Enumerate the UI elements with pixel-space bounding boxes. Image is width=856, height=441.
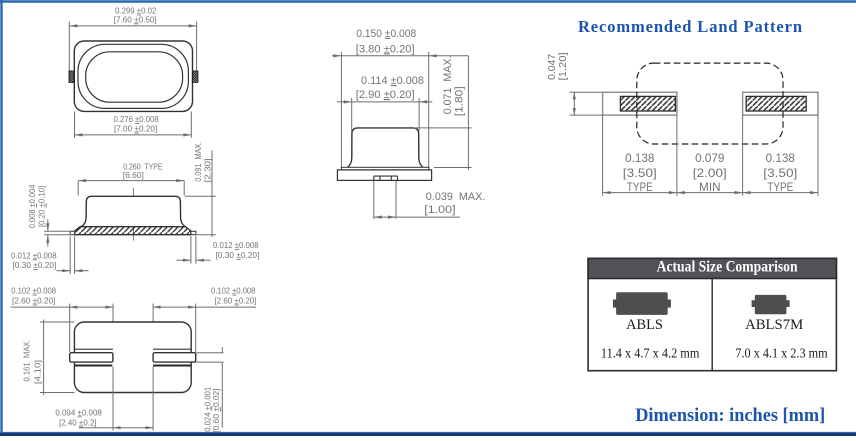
svg-text:0.102 ±0.008: 0.102 ±0.008 — [211, 286, 256, 296]
svg-text:0.138: 0.138 — [625, 151, 655, 165]
svg-text:[0.30 ±0.20]: [0.30 ±0.20] — [216, 250, 260, 260]
svg-text:ABLS7M: ABLS7M — [745, 317, 803, 333]
svg-text:[2.40 ±0.2]: [2.40 ±0.2] — [59, 418, 97, 428]
svg-text:[0.30 ±0.20]: [0.30 ±0.20] — [13, 260, 57, 270]
svg-text:[7.00 ±0.20]: [7.00 ±0.20] — [114, 124, 157, 134]
svg-text:0.071 MAX.: 0.071 MAX. — [442, 56, 454, 115]
svg-text:7.0 x 4.1 x 2.3 mm: 7.0 x 4.1 x 2.3 mm — [735, 347, 827, 362]
svg-text:Recommended Land Pattern: Recommended Land Pattern — [578, 17, 802, 36]
svg-text:[1.20]: [1.20] — [557, 52, 569, 80]
svg-text:0.012 ±0.008: 0.012 ±0.008 — [11, 250, 57, 260]
svg-text:0.150 ±0.008: 0.150 ±0.008 — [356, 28, 416, 40]
svg-text:[3.50]: [3.50] — [763, 166, 797, 180]
svg-text:0.094 ±0.008: 0.094 ±0.008 — [55, 408, 102, 418]
svg-text:0.138: 0.138 — [766, 151, 796, 165]
svg-text:[2.60 ±0.20]: [2.60 ±0.20] — [215, 296, 257, 306]
svg-text:[7.60 ±0.50]: [7.60 ±0.50] — [114, 14, 157, 24]
svg-text:TYPE: TYPE — [627, 180, 653, 194]
svg-text:0.161 MAX.: 0.161 MAX. — [22, 340, 32, 382]
svg-text:0.012 ±0.008: 0.012 ±0.008 — [213, 240, 259, 250]
svg-text:[1.80]: [1.80] — [454, 86, 466, 116]
svg-text:[2.60 ±0.20]: [2.60 ±0.20] — [12, 296, 56, 306]
svg-text:[0.60 ±0.02]: [0.60 ±0.02] — [211, 389, 221, 433]
svg-text:ABLS: ABLS — [626, 317, 663, 333]
svg-text:[1.00]: [1.00] — [424, 204, 455, 216]
svg-text:0.039 MAX.: 0.039 MAX. — [426, 191, 486, 203]
svg-text:[4.10]: [4.10] — [32, 360, 42, 384]
svg-text:0.008 ±0.004: 0.008 ±0.004 — [27, 184, 37, 228]
svg-text:0.079: 0.079 — [695, 151, 725, 165]
svg-text:TYPE: TYPE — [767, 180, 793, 194]
svg-text:0.276 ±0.008: 0.276 ±0.008 — [114, 114, 159, 124]
svg-text:0.047: 0.047 — [546, 54, 558, 80]
svg-text:[3.50]: [3.50] — [623, 166, 657, 180]
svg-text:[0.20 ±0.10]: [0.20 ±0.10] — [37, 186, 47, 227]
svg-text:[2.90 ±0.20]: [2.90 ±0.20] — [356, 89, 415, 101]
svg-text:[6.60]: [6.60] — [123, 170, 144, 180]
svg-text:11.4 x 4.7 x 4.2 mm: 11.4 x 4.7 x 4.2 mm — [601, 347, 700, 362]
svg-text:[2.30]: [2.30] — [203, 158, 213, 182]
svg-text:0.114 ±0.008: 0.114 ±0.008 — [361, 75, 424, 87]
svg-text:0.091 MAX.: 0.091 MAX. — [193, 142, 203, 182]
svg-text:0.102 ±0.008: 0.102 ±0.008 — [11, 286, 56, 296]
svg-text:Dimension: inches [mm]: Dimension: inches [mm] — [635, 405, 825, 426]
svg-text:[3.80 ±0.20]: [3.80 ±0.20] — [356, 43, 415, 55]
svg-text:MIN: MIN — [699, 180, 721, 194]
svg-text:Actual Size Comparison: Actual Size Comparison — [657, 258, 798, 275]
svg-text:[2.00]: [2.00] — [693, 166, 727, 180]
